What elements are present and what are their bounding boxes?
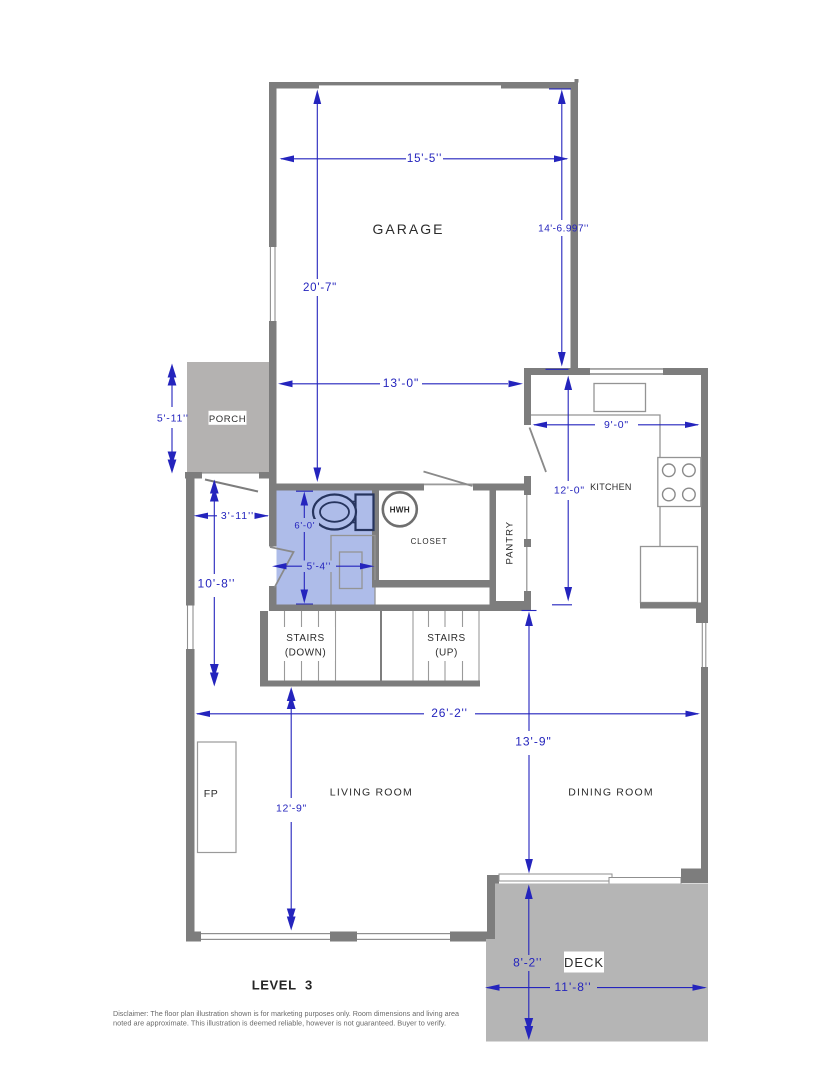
svg-text:14'-6.997'': 14'-6.997'' (538, 224, 589, 235)
svg-text:20'-7": 20'-7" (303, 282, 337, 294)
svg-text:11'-8'': 11'-8'' (555, 980, 592, 994)
svg-text:5'-11'': 5'-11'' (157, 413, 189, 425)
svg-text:9'-0": 9'-0" (604, 419, 629, 431)
svg-text:12'-0": 12'-0" (554, 485, 585, 497)
svg-text:15'-5'': 15'-5'' (407, 153, 442, 165)
svg-text:DINING ROOM: DINING ROOM (568, 786, 654, 798)
svg-text:(DOWN): (DOWN) (285, 648, 326, 659)
svg-text:CLOSET: CLOSET (411, 537, 448, 546)
svg-text:5'-4'': 5'-4'' (307, 562, 331, 573)
svg-text:noted are approximate. This il: noted are approximate. This illustration… (113, 1021, 446, 1028)
svg-text:STAIRS: STAIRS (427, 633, 465, 644)
svg-text:(UP): (UP) (435, 648, 458, 659)
svg-text:13'-0": 13'-0" (383, 376, 420, 390)
svg-text:STAIRS: STAIRS (286, 633, 324, 644)
svg-text:13'-9": 13'-9" (515, 735, 552, 749)
svg-text:DECK: DECK (564, 955, 604, 970)
svg-text:KITCHEN: KITCHEN (590, 482, 632, 492)
svg-text:LEVEL 3: LEVEL 3 (252, 978, 313, 993)
svg-text:PANTRY: PANTRY (505, 521, 516, 565)
svg-text:26'-2'': 26'-2'' (431, 706, 468, 720)
svg-text:8'-2'': 8'-2'' (513, 956, 542, 970)
svg-text:3'-11'': 3'-11'' (221, 510, 254, 522)
svg-text:LIVING ROOM: LIVING ROOM (330, 786, 413, 798)
svg-text:PORCH: PORCH (209, 414, 246, 425)
svg-text:Disclaimer: The floor plan ill: Disclaimer: The floor plan illustration … (113, 1011, 459, 1018)
svg-text:FP: FP (204, 788, 218, 800)
svg-text:10'-8'': 10'-8'' (198, 577, 236, 591)
svg-text:6'-0': 6'-0' (294, 521, 315, 532)
svg-text:HWH: HWH (390, 506, 410, 515)
svg-text:12'-9": 12'-9" (276, 803, 307, 815)
svg-text:GARAGE: GARAGE (373, 221, 445, 237)
